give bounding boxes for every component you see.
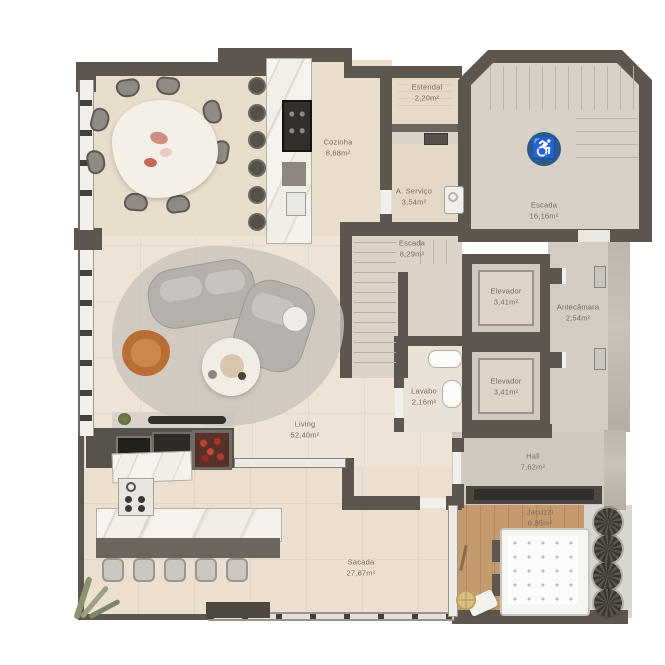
room-label-elevador-2: Elevador3,41m² [490, 377, 521, 398]
railing-planter-box [206, 602, 270, 618]
wall-hall-top [462, 424, 552, 438]
room-label-hall: Hall7,62m² [521, 452, 546, 473]
servico-floor [392, 130, 458, 236]
jacuzzi-tub-inner [508, 536, 578, 604]
wall-bay-left-post [218, 48, 226, 76]
island-stool [248, 213, 266, 231]
deck-tray [456, 590, 476, 610]
armchair-seat [131, 339, 161, 367]
antecamara-right-wall [608, 242, 630, 432]
wall-hall-left-a [452, 438, 464, 452]
tower-stair-treads-top [478, 66, 636, 110]
lavabo-door [395, 388, 403, 418]
cooktop-burner [138, 496, 145, 503]
wall-kitchen-divider [380, 66, 392, 190]
coffee-table-item [238, 372, 246, 380]
window-mullion [80, 300, 92, 306]
island-stool [248, 77, 266, 95]
servico-sink [424, 133, 448, 145]
window-mullion [80, 190, 92, 196]
room-label-escada-interna: Escada8,29m² [399, 239, 425, 260]
room-label-cozinha: Cozinha8,68m² [324, 138, 353, 159]
room-label-escada-principal: Escada16,16m² [530, 201, 559, 222]
shrub-plant [594, 589, 622, 617]
kitchen-sink [286, 192, 306, 216]
cooktop-burner [125, 505, 132, 512]
wall-innerstair-left [340, 222, 352, 378]
hall-console-inner [474, 489, 594, 500]
room-label-antecamara: Antecâmara2,54m² [557, 303, 599, 324]
gourmet-cooktop [118, 478, 154, 516]
sliding-window [234, 458, 346, 468]
bar-stool [133, 558, 155, 582]
elevator-stub-2 [548, 352, 562, 368]
wall-balcony-corner-h [342, 496, 420, 510]
window-mullion [80, 360, 92, 366]
hall-right-wall [604, 430, 626, 510]
island-stool [248, 131, 266, 149]
window-mullion [80, 270, 92, 276]
window-left-lower [78, 250, 94, 436]
room-label-elevador-1: Elevador3,41m² [490, 287, 521, 308]
window-mullion [80, 330, 92, 336]
wall-estendal-divider [392, 124, 458, 132]
balcony-door [420, 498, 446, 508]
coffee-table-item [208, 370, 217, 379]
room-label-sacada: Sacada27,87m² [347, 558, 376, 579]
accessibility-badge: ♿ [527, 132, 561, 166]
antecamara-pillar-1 [594, 266, 606, 288]
toilet [428, 350, 462, 368]
shrub-plant [594, 508, 622, 536]
shrub-plant [594, 535, 622, 563]
bar-stool [164, 558, 186, 582]
kitchen-module [282, 162, 306, 186]
floor-plan: ♿ [0, 0, 665, 665]
elevator-stub-2-cap [562, 352, 566, 368]
room-label-lavabo: Lavabo2,16m² [411, 387, 437, 408]
jacuzzi-side-stub [492, 540, 500, 562]
cooktop-burner [125, 496, 132, 503]
wall-lavabo-top [394, 336, 462, 346]
window-mullion [80, 100, 92, 106]
tower-stair-treads-right [576, 112, 638, 170]
sofa-side-table [282, 306, 308, 332]
wall-top-main [84, 62, 274, 76]
elevator-stub-1-cap [562, 268, 566, 284]
bar-stool [195, 558, 217, 582]
lavabo-sink [442, 380, 462, 408]
wall-left-mid-stub [74, 228, 102, 250]
island-stool [248, 186, 266, 204]
servico-door [381, 190, 391, 214]
room-label-estendal: Estendal2,20m² [412, 83, 443, 104]
island-stool [248, 159, 266, 177]
island-stool [248, 104, 266, 122]
room-label-living: Living52,40m² [291, 420, 320, 441]
cooktop-oven [282, 100, 312, 152]
bar-stool [102, 558, 124, 582]
window-mullion [80, 415, 92, 421]
antecamara-pillar-2 [594, 348, 606, 370]
wall-lavabo-left-b [394, 418, 404, 432]
washing-machine-drum [448, 192, 458, 202]
elevator-stub-1 [548, 268, 562, 284]
hall-door [453, 452, 461, 484]
window-mullion [80, 130, 92, 136]
wheelchair-icon: ♿ [532, 139, 557, 159]
cooktop-burner [138, 505, 145, 512]
cooktop-ring [126, 482, 136, 492]
room-label-jacuzzi: Jacuzzi6,85m² [527, 508, 553, 529]
inner-stair-treads [354, 240, 396, 372]
bar-stool [226, 558, 248, 582]
room-label-a-servico: A. Serviço3,54m² [396, 187, 432, 208]
jacuzzi-side-stub [492, 574, 500, 596]
wall-top-right [348, 66, 462, 78]
shelf-plant [118, 413, 131, 425]
wall-innerstair-top [340, 222, 472, 236]
tower-bottom-door-gap [578, 230, 610, 242]
shrub-plant [593, 562, 621, 590]
window-mullion [80, 390, 92, 396]
barbecue-grill [192, 430, 232, 470]
tv-screen [148, 416, 226, 424]
gourmet-counter-front [96, 538, 280, 558]
